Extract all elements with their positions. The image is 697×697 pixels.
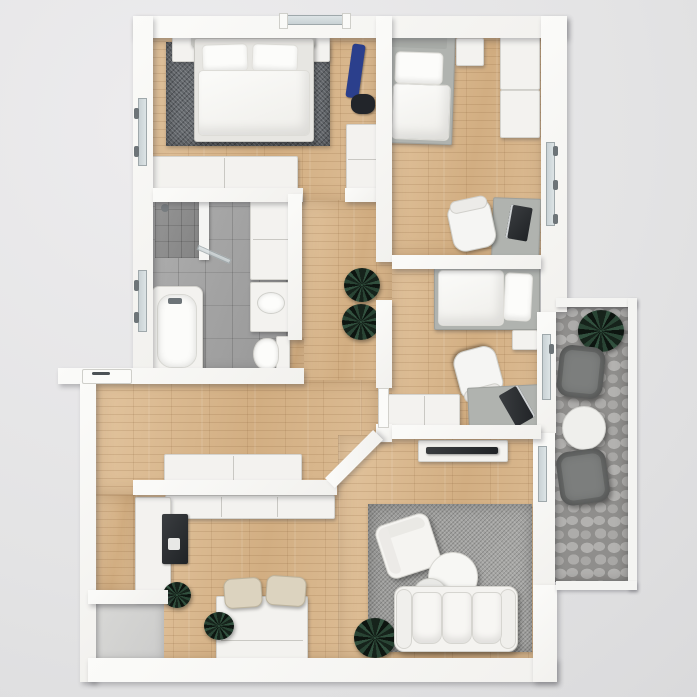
kids2-bed-pillow (503, 272, 533, 321)
sofa (394, 586, 518, 652)
kids1-bed-pillow (394, 51, 443, 85)
bed-pillow-left (202, 43, 249, 73)
kids2-nightstand (512, 330, 538, 350)
top-window (283, 15, 345, 25)
top-window-cap-right (342, 13, 351, 29)
kids1-window-handle-3 (553, 214, 558, 224)
kids1-window-handle-1 (553, 146, 558, 156)
shower-head (161, 204, 169, 212)
living-kitchen-plant (354, 618, 396, 658)
wall-kids1-kids2 (392, 255, 541, 269)
bathroom-window-handle-2 (134, 312, 139, 323)
kids1-bed-duvet (391, 83, 451, 141)
bathtub-basin (157, 294, 197, 368)
dining-chair-2 (265, 575, 307, 608)
sofa-cushion-3 (472, 592, 502, 644)
bedroom-wardrobe (346, 124, 380, 194)
balcony-table (562, 406, 606, 450)
balcony-rail-top (556, 298, 637, 307)
living-balcony-door (538, 446, 547, 502)
corridor-floor (95, 495, 137, 592)
balcony-rail-bottom (556, 581, 637, 590)
dining-plant (204, 612, 234, 640)
toilet-bowl (253, 338, 279, 370)
kids2-balcony-door-handle (549, 344, 554, 354)
balcony-chair-1 (555, 344, 606, 401)
hallway-plant-1 (344, 268, 380, 302)
top-window-cap-left (279, 13, 288, 29)
sofa-armrest-right (500, 589, 516, 649)
terrace-floor (92, 604, 164, 660)
wall-divider-mid (376, 300, 392, 388)
wardrobe-seam (348, 159, 377, 160)
bedroom-left-window (138, 98, 147, 166)
hallway-sideboard (164, 454, 302, 482)
sofa-cushion-1 (412, 592, 442, 644)
hallway-plant-2 (342, 304, 380, 340)
entry-door-handle (92, 372, 110, 375)
wall-left-lower (80, 382, 96, 682)
kids2-cabinet-seam (424, 396, 425, 425)
kids1-window-handle-2 (553, 180, 558, 190)
wall-right-lower (533, 585, 557, 682)
kids1-nightstand (456, 38, 484, 66)
kitchen-counter-run (165, 495, 335, 519)
bedroom-window-handle-2 (134, 146, 139, 157)
wall-bottom (88, 658, 557, 682)
wall-divider-upper (376, 16, 392, 262)
washbasin (257, 292, 285, 314)
balcony-chair-2 (554, 447, 611, 507)
dining-table-seam (221, 640, 304, 641)
wall-terrace-nook (88, 590, 168, 604)
bathroom-window-handle-1 (134, 280, 139, 291)
wall-kids2-living (392, 425, 541, 439)
bathroom-vanity (250, 198, 292, 280)
kids1-wardrobe-upper (500, 34, 540, 90)
dining-chair-1 (223, 577, 263, 610)
wall-kitchen-hall (133, 480, 337, 495)
sideboard-seam (233, 456, 234, 480)
bed-pillow-right (252, 43, 299, 73)
wall-bedroom-bottom-west (153, 188, 303, 202)
appliance-knob-panel (168, 538, 180, 550)
sofa-cushion-2 (442, 592, 472, 644)
kids2-bed-duvet (438, 270, 504, 326)
bathtub-faucet (168, 298, 182, 304)
kids2-door-panel (378, 388, 389, 428)
balcony-rail-right (628, 298, 637, 590)
vanity-seam (253, 239, 290, 240)
kids1-wardrobe-lower (500, 90, 540, 138)
bathroom-left-window (138, 270, 147, 332)
counter-seam-2 (277, 497, 278, 517)
bedroom-window-handle-1 (134, 108, 139, 119)
tv-screen (426, 447, 498, 454)
sofa-armrest-left (396, 589, 412, 649)
double-bed-duvet (198, 70, 310, 136)
counter-seam-1 (221, 497, 222, 517)
dresser-seam (224, 158, 225, 191)
floor-plan-canvas (0, 0, 697, 697)
kids2-cabinet (388, 394, 460, 428)
wall-bedroom-bottom-east (345, 188, 378, 202)
wall-bathroom-right (288, 194, 302, 340)
